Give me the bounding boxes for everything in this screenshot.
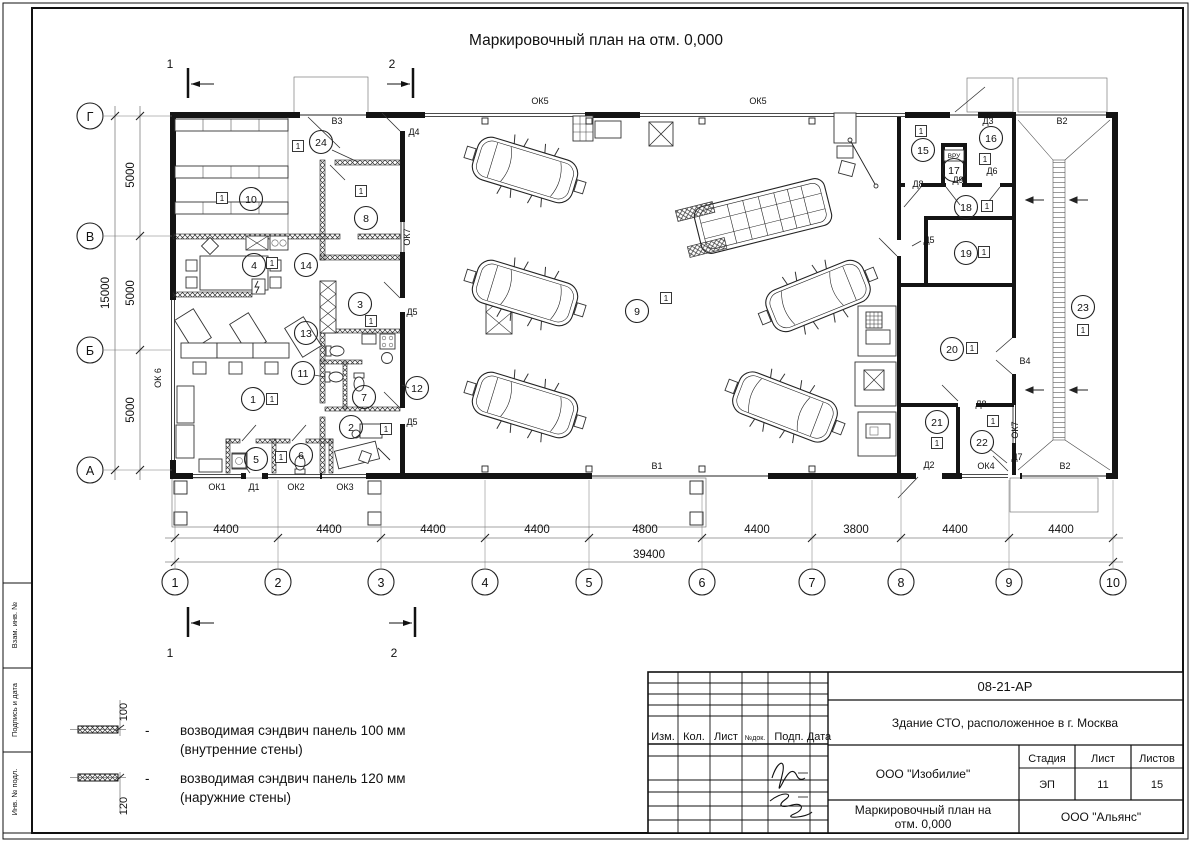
axis-label-h: 4: [482, 576, 489, 590]
dimension-value: 4400: [744, 524, 770, 536]
axis-label-h: 8: [898, 576, 905, 590]
dimension-value: 5000: [125, 397, 137, 423]
opening-label: В4: [1019, 356, 1030, 366]
dimension-value: 5000: [125, 162, 137, 188]
room-number: 2: [348, 422, 354, 434]
opening-label: Д8: [912, 179, 923, 189]
tag-label: 1: [982, 248, 987, 257]
room-number: 21: [931, 417, 943, 429]
room-number: 11: [298, 368, 309, 380]
tag-label: 1: [1081, 326, 1086, 335]
tag-label: 1: [220, 194, 225, 203]
section-label: 2: [391, 646, 398, 660]
sheets-total: 15: [1151, 779, 1163, 791]
legend-text-1a: возводимая сэндвич панель 100 мм: [180, 723, 406, 738]
room-number: 18: [960, 202, 972, 214]
opening-label: ОК1: [208, 482, 225, 492]
sheet-number: 11: [1097, 779, 1108, 791]
opening-label: ОК4: [977, 461, 994, 471]
room-number: 16: [985, 133, 997, 145]
project-name: Здание СТО, расположенное в г. Москва: [892, 716, 1118, 730]
dimension-value: 4400: [213, 524, 239, 536]
room-number: 22: [976, 437, 988, 449]
contractor-name: ООО "Альянс": [1061, 810, 1141, 824]
side-label-1: Взам. инв. №: [10, 602, 19, 648]
opening-label: ОК7: [402, 228, 412, 245]
axis-label-v: Г: [87, 110, 94, 124]
plan-title: Маркировочный план на отм. 0,000: [469, 32, 723, 49]
opening-label: ОК5: [531, 96, 548, 106]
room-number: 8: [363, 213, 369, 225]
room-number: 19: [960, 248, 972, 260]
room-number: 1: [250, 394, 256, 406]
tag-label: 1: [919, 127, 924, 136]
tag-label: 1: [369, 317, 374, 326]
axis-label-h: 5: [586, 576, 593, 590]
opening-label: ОК2: [287, 482, 304, 492]
col-list: Лист: [714, 731, 738, 743]
tag-label: 1: [664, 294, 669, 303]
opening-label: Д2: [923, 460, 934, 470]
sheet-label: Лист: [1091, 753, 1115, 765]
tag-label: 1: [983, 155, 988, 164]
tag-label: 1: [991, 417, 996, 426]
room-number: 9: [634, 306, 640, 318]
opening-label: Д8: [975, 399, 986, 409]
room-number: 24: [315, 137, 327, 149]
opening-label: ОК7: [1010, 421, 1020, 438]
stage-label: Стадия: [1028, 753, 1066, 765]
opening-label: В1: [651, 461, 662, 471]
opening-label: Д5: [406, 417, 417, 427]
doc-code: 08-21-АР: [978, 679, 1033, 694]
dimension-value: 4400: [316, 524, 342, 536]
opening-label: Д4: [408, 127, 419, 137]
opening-label: В3: [331, 116, 342, 126]
side-label-2: Подпись и дата: [10, 682, 19, 737]
dimension-total: 15000: [100, 277, 112, 309]
dimension-value: 5000: [125, 280, 137, 306]
opening-label: ОК5: [749, 96, 766, 106]
legend-text-2a: возводимая сэндвич панель 120 мм: [180, 771, 406, 786]
tag-label: 1: [270, 259, 275, 268]
opening-label: Д5: [923, 235, 934, 245]
opening-label: ОК 6: [153, 368, 163, 388]
room-number: 5: [253, 454, 259, 466]
axis-label-v: Б: [86, 344, 94, 358]
room-number: 6: [298, 450, 304, 462]
drawing-name-1: Маркировочный план на: [855, 803, 992, 817]
room-number: 10: [245, 194, 257, 206]
sheets-label: Листов: [1139, 753, 1175, 765]
axis-label-v: А: [86, 464, 95, 478]
legend-text-1b: (внутренние стены): [180, 742, 303, 757]
legend-dash-1: -: [145, 723, 150, 738]
opening-label: В2: [1056, 116, 1067, 126]
opening-label: Д5: [406, 307, 417, 317]
axis-label-h: 9: [1006, 576, 1013, 590]
room-number: 14: [300, 260, 312, 272]
tag-label: 1: [985, 202, 990, 211]
room-number: 3: [357, 299, 363, 311]
axis-label-v: В: [86, 230, 94, 244]
company-name: ООО "Изобилие": [876, 767, 970, 781]
legend-dim-1: 100: [118, 703, 130, 721]
drawing-name-2: отм. 0,000: [895, 817, 952, 831]
room-number: 12: [411, 383, 423, 395]
tag-label: 1: [970, 344, 975, 353]
section-label: 1: [167, 57, 174, 71]
room-number: 13: [300, 328, 312, 340]
legend-dim-2: 120: [118, 797, 130, 815]
col-izm: Изм.: [651, 731, 675, 743]
dimension-value: 4800: [632, 524, 658, 536]
axis-label-h: 2: [275, 576, 282, 590]
opening-label: ОК3: [336, 482, 353, 492]
drawing-sheet: Маркировочный план на отм. 0,000: [0, 0, 1191, 842]
legend-dash-2: -: [145, 771, 150, 786]
floor-plan-svg: Маркировочный план на отм. 0,000: [0, 0, 1191, 842]
title-block: Изм. Кол. Лист №док. Подп. Дата 08-21-АР…: [648, 672, 1183, 833]
dimension-value: 3800: [843, 524, 869, 536]
dimension-value: 4400: [1048, 524, 1074, 536]
opening-label: Д6: [986, 166, 997, 176]
stage-value: ЭП: [1039, 779, 1055, 791]
vent-shaft: [320, 281, 336, 333]
room-number: 20: [946, 344, 958, 356]
dimension-value: 4400: [524, 524, 550, 536]
dimension-value: 4400: [942, 524, 968, 536]
tag-label: 1: [359, 187, 364, 196]
axis-label-h: 3: [378, 576, 385, 590]
room-number: 15: [917, 145, 929, 157]
col-ndok: №док.: [745, 735, 766, 742]
room-number: 23: [1077, 302, 1089, 314]
room-number: 7: [361, 392, 367, 404]
opening-label: Д3: [982, 116, 993, 126]
col-podp: Подп.: [774, 731, 803, 743]
axis-label-h: 6: [699, 576, 706, 590]
section-label: 1: [167, 646, 174, 660]
axis-label-h: 1: [172, 576, 179, 590]
dimension-total: 39400: [633, 549, 665, 561]
axis-label-h: 7: [809, 576, 816, 590]
legend-text-2b: (наружние стены): [180, 790, 291, 805]
col-kol: Кол.: [683, 731, 705, 743]
opening-label: Д7: [1011, 452, 1022, 462]
tag-label: 1: [296, 142, 301, 151]
opening-label: Д1: [248, 482, 259, 492]
section-label: 2: [389, 57, 396, 71]
workbenches: [855, 306, 896, 456]
opening-label: В2: [1059, 461, 1070, 471]
col-data: Дата: [807, 731, 832, 743]
tag-label: 1: [270, 395, 275, 404]
room-number: 4: [251, 260, 257, 272]
tag-label: 1: [279, 453, 284, 462]
tag-label: 1: [935, 439, 940, 448]
opening-label: Д9: [952, 175, 963, 185]
dimension-value: 4400: [420, 524, 446, 536]
side-label-3: Инв. № подл.: [10, 769, 19, 816]
tag-label: 1: [384, 425, 389, 434]
axis-label-h: 10: [1106, 576, 1120, 590]
